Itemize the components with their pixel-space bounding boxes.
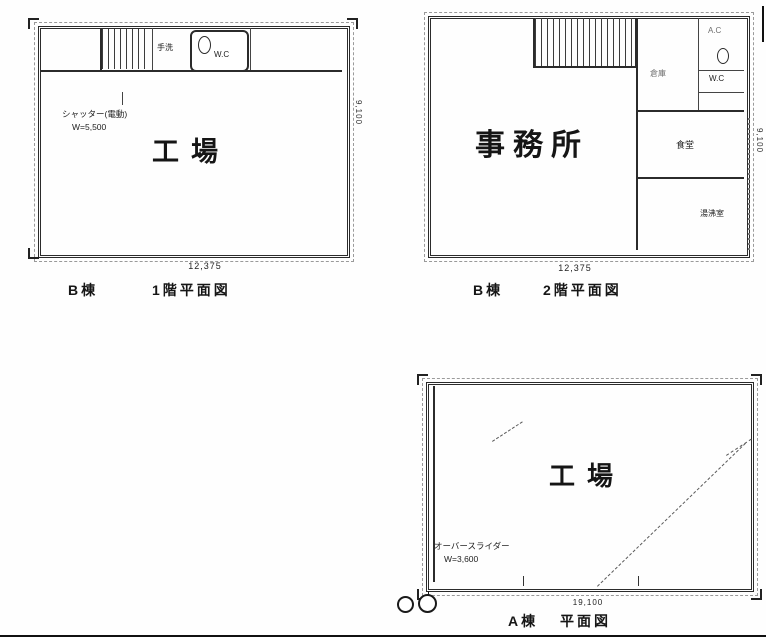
room-label-office: 事務所 — [428, 120, 636, 164]
plan-b2-partition — [698, 70, 744, 71]
plan-b1-title: 1階平面図 — [152, 280, 231, 300]
plan-b2-width-dim: 12,375 — [525, 263, 625, 273]
column-marker-icon — [397, 596, 414, 613]
plan-b1-partition — [250, 28, 251, 70]
shutter-note-line2: W=5,500 — [62, 121, 127, 134]
toilet-icon — [717, 48, 729, 64]
plan-b2-partition-main — [636, 18, 638, 250]
overslider-note-line2: W=3,600 — [434, 553, 510, 566]
plan-a-building-label: A棟 — [508, 611, 538, 631]
plan-b2-height-dim: 9,100 — [755, 128, 764, 153]
storage-label: 倉庫 — [650, 68, 666, 79]
overslider-note: オーバースライダー W=3,600 — [434, 540, 510, 566]
corner-mark — [751, 374, 762, 385]
corner-mark — [417, 374, 428, 385]
corner-mark — [347, 18, 358, 29]
plan-a-title: 平面図 — [560, 611, 611, 631]
corner-mark — [28, 18, 39, 29]
plan-b2-stairs-hatch — [533, 18, 637, 68]
toilet-icon — [198, 36, 211, 54]
floorplan-scan-page: 手洗 W.C 工場 シャッター(電動) W=5,500 9,100 12,375… — [0, 0, 766, 640]
plan-a-width-dim: 19,100 — [543, 598, 633, 607]
plan-b2-partition — [698, 92, 744, 93]
wc-label: W.C — [709, 74, 724, 83]
scan-edge-line — [0, 635, 766, 637]
plan-b1-building-label: B棟 — [68, 280, 98, 300]
scan-edge-line — [762, 6, 764, 42]
kitchenette-label: 湯沸室 — [700, 208, 724, 219]
leader-line — [122, 92, 123, 105]
dim-tick — [638, 576, 639, 586]
plan-b1-partition — [152, 28, 153, 70]
corner-mark — [751, 589, 762, 600]
wc-label: W.C — [214, 50, 229, 59]
corner-mark — [28, 248, 39, 259]
plan-b2-building-label: B棟 — [473, 280, 503, 300]
plan-b2-title: 2階平面図 — [543, 280, 622, 300]
room-label-factory-a: 工場 — [426, 456, 748, 493]
room-label-factory-b1: 工場 — [38, 130, 344, 169]
overslider-note-line1: オーバースライダー — [434, 540, 510, 553]
plan-b1-height-dim: 9,100 — [354, 100, 363, 125]
dim-tick — [523, 576, 524, 586]
shutter-note: シャッター(電動) W=5,500 — [62, 108, 127, 134]
plan-b1-stairs-hatch — [102, 29, 150, 69]
washstand-label: 手洗 — [157, 42, 173, 53]
plan-b1-width-dim: 12,375 — [160, 261, 250, 271]
ac-label: A.C — [708, 26, 721, 35]
column-marker-icon — [418, 594, 437, 613]
dining-label: 食堂 — [676, 138, 694, 151]
plan-b2-partition — [638, 110, 744, 112]
shutter-note-line1: シャッター(電動) — [62, 108, 127, 121]
plan-b2-partition — [638, 177, 744, 179]
scan-artifact — [748, 118, 750, 250]
plan-b2-partition — [698, 18, 699, 110]
